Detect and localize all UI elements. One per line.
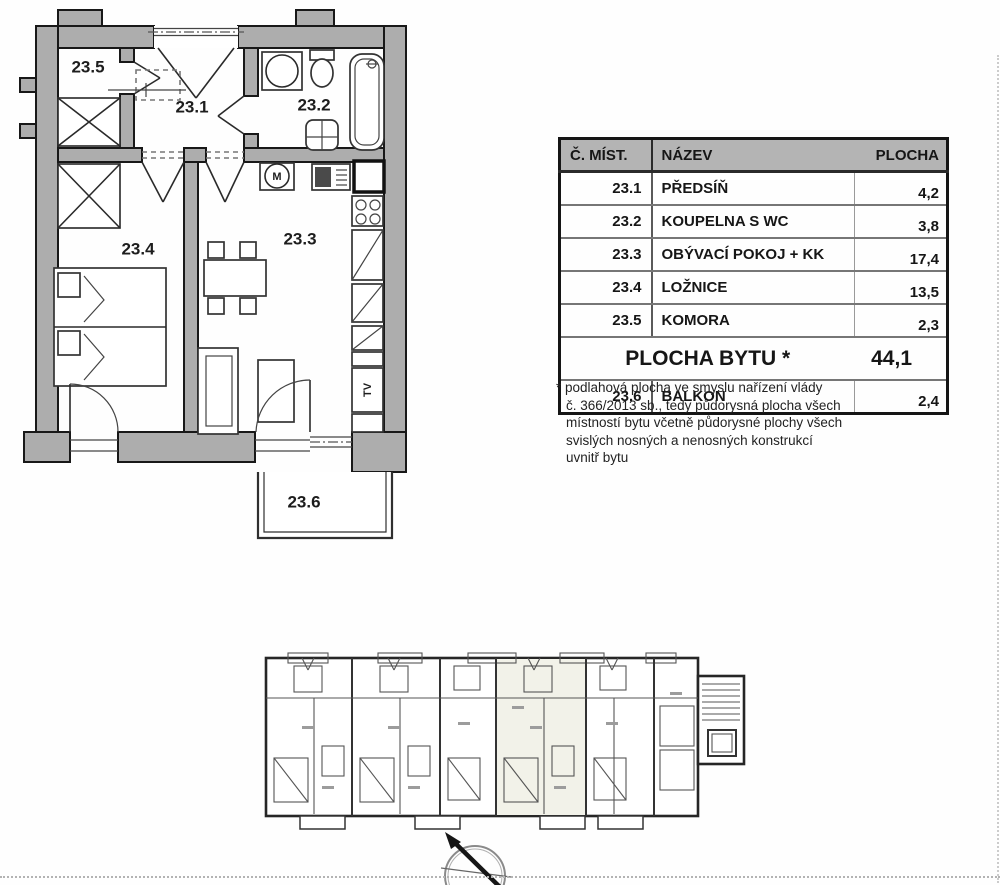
bedroom-door	[142, 152, 184, 202]
shelf-unit	[352, 284, 383, 366]
bedroom-window	[70, 384, 118, 451]
footnote-line: místností bytu včetně půdorysné plochy v…	[556, 414, 928, 432]
entrance-door	[148, 26, 244, 98]
room-area-table: Č. MÍST. NÁZEV PLOCHA 23.1 PŘEDSÍŇ 4,2 2…	[558, 137, 949, 415]
bathroom-door	[218, 96, 244, 134]
building-balconies	[300, 816, 643, 829]
highlighted-apartment	[496, 659, 586, 815]
room-area: 3,8	[855, 205, 948, 238]
toilet	[310, 50, 334, 87]
room-name: KOUPELNA S WC	[652, 205, 855, 238]
table-row: 23.3 OBÝVACÍ POKOJ + KK 17,4	[560, 238, 948, 271]
washing-machine-label: M	[272, 171, 281, 183]
page-edge-line	[997, 55, 999, 883]
total-area-label: PLOCHA BYTU *	[560, 337, 855, 380]
room-label-hall: 23.1	[175, 97, 208, 116]
table-row: 23.4 LOŽNICE 13,5	[560, 271, 948, 304]
dining-table	[204, 242, 266, 314]
footnote-line: uvnitř bytu	[556, 449, 928, 467]
living-room-door	[206, 152, 244, 202]
room-label-balcony: 23.6	[287, 492, 320, 511]
double-bed	[54, 268, 166, 386]
apartment-floor-plan: M	[0, 0, 420, 555]
stove	[352, 196, 383, 226]
table-row: 23.5 KOMORA 2,3	[560, 304, 948, 337]
room-label-living: 23.3	[283, 229, 316, 248]
total-area-row: PLOCHA BYTU * 44,1	[560, 337, 948, 380]
room-area: 17,4	[855, 238, 948, 271]
washing-machine: M	[260, 163, 294, 190]
sink	[306, 120, 338, 150]
room-name: KOMORA	[652, 304, 855, 337]
header-name: NÁZEV	[652, 139, 855, 172]
room-name: OBÝVACÍ POKOJ + KK	[652, 238, 855, 271]
scanned-floorplan-document: M	[0, 0, 1000, 885]
room-name: LOŽNICE	[652, 271, 855, 304]
room-label-storage: 23.5	[71, 57, 104, 76]
total-area-value: 44,1	[855, 337, 948, 380]
footnote-line: č. 366/2013 sb., tedy půdorysná plocha v…	[556, 397, 928, 415]
sofa	[198, 348, 238, 434]
room-number: 23.1	[560, 172, 652, 206]
room-label-bathroom: 23.2	[297, 95, 330, 114]
fridge	[354, 161, 384, 192]
table-row: 23.2 KOUPELNA S WC 3,8	[560, 205, 948, 238]
room-area: 13,5	[855, 271, 948, 304]
area-definition-footnote: * podlahová plocha ve smyslu nařízení vl…	[556, 379, 928, 467]
washbasin	[262, 52, 302, 90]
footnote-line: * podlahová plocha ve smyslu nařízení vl…	[556, 379, 928, 397]
kitchen-sink	[312, 164, 350, 190]
header-area: PLOCHA	[855, 139, 948, 172]
kitchen-counter	[352, 230, 383, 280]
room-number: 23.2	[560, 205, 652, 238]
footnote-line: svislých nosných a nenosných konstrukcí	[556, 432, 928, 450]
header-room-number: Č. MÍST.	[560, 139, 652, 172]
building-overview-plan	[262, 646, 748, 832]
tv-cabinet: TV	[352, 368, 383, 432]
table-header-row: Č. MÍST. NÁZEV PLOCHA	[560, 139, 948, 172]
room-name: PŘEDSÍŇ	[652, 172, 855, 206]
room-label-bedroom: 23.4	[121, 239, 155, 258]
room-bedroom	[54, 164, 166, 451]
balcony	[258, 472, 392, 538]
table-row: 23.1 PŘEDSÍŇ 4,2	[560, 172, 948, 206]
page-fold-line	[0, 876, 1000, 878]
bathtub	[350, 54, 384, 150]
coffee-table	[258, 360, 294, 422]
room-number: 23.4	[560, 271, 652, 304]
room-area: 2,3	[855, 304, 948, 337]
tv-label: TV	[362, 382, 374, 397]
room-area: 4,2	[855, 172, 948, 206]
room-storage	[58, 98, 120, 146]
room-number: 23.3	[560, 238, 652, 271]
kitchenette: M	[260, 161, 384, 280]
room-number: 23.5	[560, 304, 652, 337]
